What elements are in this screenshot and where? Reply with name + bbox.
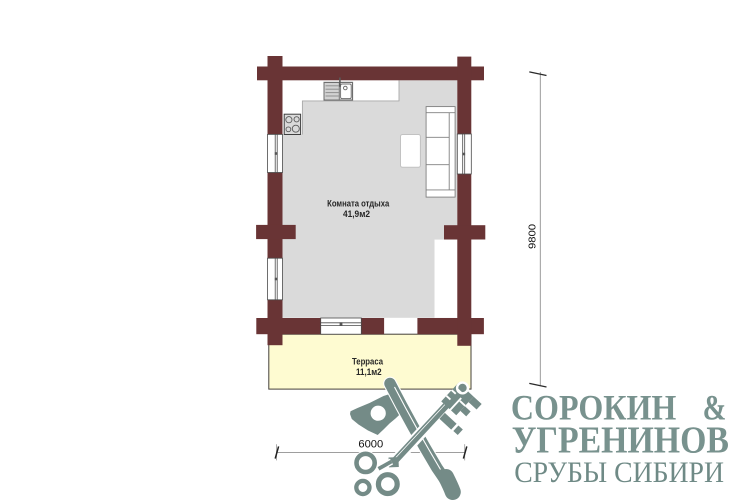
svg-text:6000: 6000	[358, 439, 383, 451]
svg-text:СРУБЫ СИБИРИ: СРУБЫ СИБИРИ	[514, 457, 724, 489]
svg-text:Комната отдыха: Комната отдыха	[327, 198, 390, 209]
svg-text:41,9м2: 41,9м2	[343, 209, 370, 220]
svg-text:9800: 9800	[526, 224, 538, 249]
svg-text:11,1м2: 11,1м2	[356, 367, 382, 378]
svg-text:Терраса: Терраса	[352, 357, 384, 368]
svg-text:УГРЕНИНОВ: УГРЕНИНОВ	[512, 420, 729, 462]
